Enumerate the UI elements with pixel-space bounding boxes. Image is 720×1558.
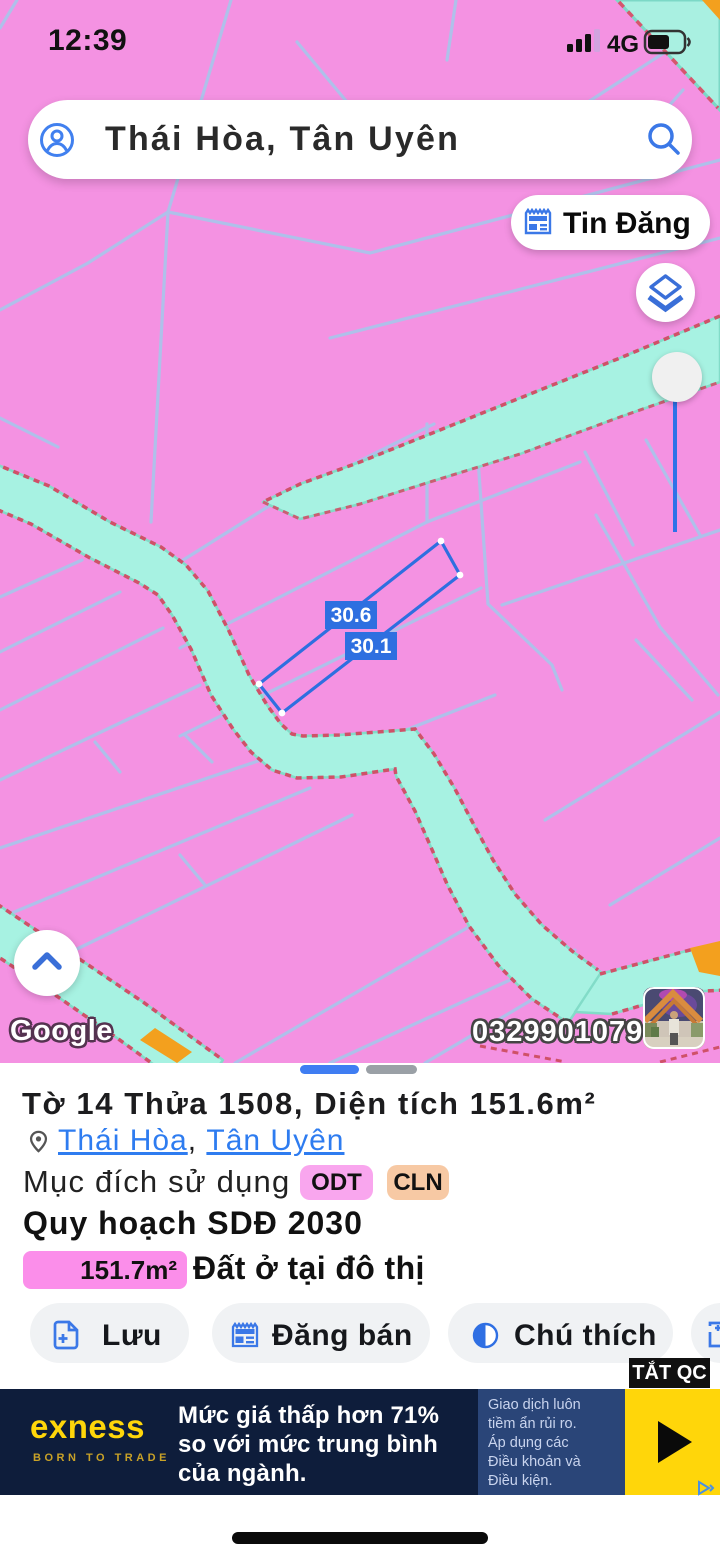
svg-text:4G: 4G	[607, 31, 639, 58]
svg-text:30.6: 30.6	[331, 604, 372, 627]
svg-text:30.1: 30.1	[351, 635, 392, 658]
